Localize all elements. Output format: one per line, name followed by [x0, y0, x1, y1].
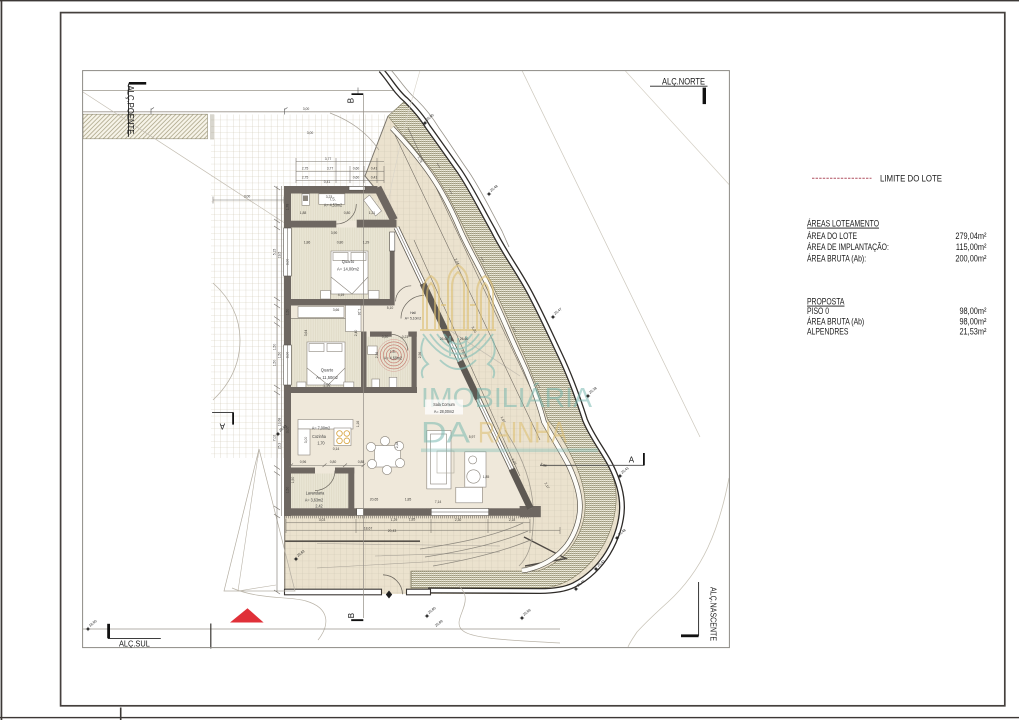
svg-text:5,15: 5,15 — [273, 249, 277, 256]
svg-text:B: B — [347, 613, 356, 618]
svg-text:1,50: 1,50 — [273, 360, 277, 367]
svg-text:0,60: 0,60 — [353, 167, 360, 171]
svg-text:3,90: 3,90 — [331, 231, 338, 235]
svg-text:A= 11,50m2: A= 11,50m2 — [316, 375, 338, 380]
svg-text:26,60: 26,60 — [460, 337, 469, 341]
svg-text:1,86: 1,86 — [304, 241, 311, 245]
svg-text:1,50: 1,50 — [291, 477, 295, 484]
svg-text:3,66: 3,66 — [333, 308, 340, 312]
svg-text:Sala Comum: Sala Comum — [433, 402, 455, 407]
svg-text:LIMITE DO LOTE: LIMITE DO LOTE — [880, 173, 942, 184]
svg-text:1,21: 1,21 — [369, 211, 376, 215]
svg-text:ÁREA DE IMPLANTAÇÃO:: ÁREA DE IMPLANTAÇÃO: — [807, 242, 889, 252]
svg-text:Lavandaria: Lavandaria — [306, 490, 325, 495]
svg-text:1,50: 1,50 — [286, 487, 290, 494]
svg-text:1,50: 1,50 — [278, 352, 282, 359]
svg-text:ALÇ.SUL: ALÇ.SUL — [119, 639, 150, 649]
svg-text:A= 7,00m2: A= 7,00m2 — [312, 425, 331, 430]
svg-text:2,92: 2,92 — [323, 382, 331, 387]
svg-text:0,23: 0,23 — [402, 335, 409, 339]
svg-text:ÁREA BRUTA (Ab):: ÁREA BRUTA (Ab): — [807, 254, 866, 264]
svg-text:4,19: 4,19 — [338, 293, 345, 297]
svg-text:19,5: 19,5 — [278, 252, 282, 259]
svg-text:3,64: 3,64 — [304, 330, 308, 337]
svg-text:5,97: 5,97 — [469, 435, 476, 439]
svg-text:B: B — [347, 98, 356, 103]
svg-text:1,50: 1,50 — [273, 344, 277, 351]
svg-text:2,75: 2,75 — [302, 167, 309, 171]
svg-text:0,14: 0,14 — [333, 447, 340, 451]
svg-text:7,14: 7,14 — [435, 500, 442, 504]
svg-text:3,03: 3,03 — [319, 518, 326, 522]
svg-text:Quarto: Quarto — [342, 259, 355, 264]
svg-text:2,36: 2,36 — [375, 352, 379, 359]
svg-text:279,04m²: 279,04m² — [955, 231, 986, 241]
svg-text:5,10: 5,10 — [387, 306, 394, 310]
svg-text:3,00: 3,00 — [304, 437, 308, 444]
svg-text:0,20: 0,20 — [382, 335, 389, 339]
svg-text:A= 3,63m2: A= 3,63m2 — [305, 497, 324, 502]
svg-text:0,96: 0,96 — [300, 460, 307, 464]
svg-text:18,67: 18,67 — [364, 527, 373, 531]
svg-text:21,53m²: 21,53m² — [959, 327, 986, 337]
svg-text:PISO 0: PISO 0 — [807, 306, 830, 316]
svg-text:Hall: Hall — [410, 311, 416, 315]
svg-text:ÁREA BRUTA (Ab): ÁREA BRUTA (Ab) — [807, 316, 864, 326]
svg-text:0,60: 0,60 — [353, 176, 360, 180]
svg-text:25,3: 25,3 — [278, 443, 282, 450]
svg-text:26,65: 26,65 — [440, 337, 449, 341]
svg-text:I.S.: I.S. — [390, 349, 396, 354]
svg-text:1,78: 1,78 — [286, 204, 290, 211]
svg-text:200,00m²: 200,00m² — [955, 254, 986, 264]
svg-text:A= 4,60m2: A= 4,60m2 — [384, 355, 403, 360]
svg-text:1,85: 1,85 — [483, 475, 490, 479]
svg-text:DA: DA — [421, 417, 470, 450]
svg-text:A: A — [219, 422, 225, 431]
svg-text:2,18: 2,18 — [509, 518, 516, 522]
svg-text:ÁREAS LOTEAMENTO: ÁREAS LOTEAMENTO — [807, 219, 879, 229]
svg-text:2,42: 2,42 — [315, 503, 323, 508]
svg-text:1,29: 1,29 — [363, 241, 370, 245]
svg-text:ALÇ.POENTE: ALÇ.POENTE — [125, 86, 136, 135]
svg-text:A= 5,10m2: A= 5,10m2 — [405, 316, 422, 320]
svg-text:7,02: 7,02 — [273, 435, 277, 442]
svg-text:0,80: 0,80 — [337, 241, 344, 245]
svg-text:3,00: 3,00 — [244, 195, 251, 199]
svg-text:3,00: 3,00 — [286, 352, 290, 359]
svg-text:0,80: 0,80 — [344, 211, 351, 215]
svg-text:Quarto: Quarto — [321, 367, 334, 372]
svg-text:3,23: 3,23 — [326, 195, 333, 199]
svg-text:1,16: 1,16 — [356, 421, 360, 428]
svg-text:1,85: 1,85 — [405, 498, 412, 502]
svg-text:ALÇ.NORTE: ALÇ.NORTE — [662, 76, 705, 87]
svg-text:1,88: 1,88 — [300, 211, 307, 215]
svg-text:3,00: 3,00 — [303, 107, 310, 111]
svg-text:A= 28,00m2: A= 28,00m2 — [434, 409, 455, 414]
svg-text:PROPOSTA: PROPOSTA — [807, 297, 845, 307]
svg-text:98,00m²: 98,00m² — [959, 307, 986, 317]
svg-text:A= 14,00m2: A= 14,00m2 — [337, 266, 360, 271]
svg-text:ALPENDRES: ALPENDRES — [807, 327, 848, 337]
svg-text:2,56: 2,56 — [418, 352, 422, 359]
svg-text:0,41: 0,41 — [324, 180, 331, 184]
svg-text:1,70: 1,70 — [317, 440, 325, 445]
svg-text:98,00m²: 98,00m² — [959, 317, 986, 327]
svg-text:0,88: 0,88 — [358, 460, 365, 464]
svg-text:3,77: 3,77 — [327, 167, 334, 171]
svg-text:RAINHA: RAINHA — [478, 417, 567, 450]
svg-text:20,43: 20,43 — [388, 529, 397, 533]
svg-text:2,75: 2,75 — [302, 176, 309, 180]
svg-text:ÁREA DO LOTE: ÁREA DO LOTE — [807, 231, 857, 241]
svg-text:2,30: 2,30 — [455, 518, 462, 522]
svg-text:1,85: 1,85 — [409, 518, 416, 522]
svg-text:A= 4,53m2: A= 4,53m2 — [324, 202, 343, 207]
svg-text:1,29: 1,29 — [391, 518, 398, 522]
svg-text:3,00: 3,00 — [286, 259, 290, 266]
svg-text:0,41: 0,41 — [371, 176, 378, 180]
svg-text:20,65: 20,65 — [370, 498, 379, 502]
svg-text:Cozinha: Cozinha — [312, 434, 326, 439]
svg-text:115,00m²: 115,00m² — [956, 243, 987, 253]
svg-text:ALÇ.NASCENTE: ALÇ.NASCENTE — [708, 587, 718, 641]
svg-text:13,68: 13,68 — [278, 418, 282, 427]
svg-text:A: A — [629, 455, 635, 464]
svg-text:3,00: 3,00 — [307, 131, 314, 135]
svg-text:2,18: 2,18 — [395, 442, 399, 449]
svg-text:0,80: 0,80 — [330, 460, 337, 464]
svg-text:2,40: 2,40 — [354, 330, 358, 337]
svg-text:1,16: 1,16 — [357, 309, 361, 316]
svg-text:0,41: 0,41 — [371, 167, 378, 171]
svg-text:3,77: 3,77 — [325, 157, 332, 161]
svg-text:1,50: 1,50 — [286, 309, 290, 316]
